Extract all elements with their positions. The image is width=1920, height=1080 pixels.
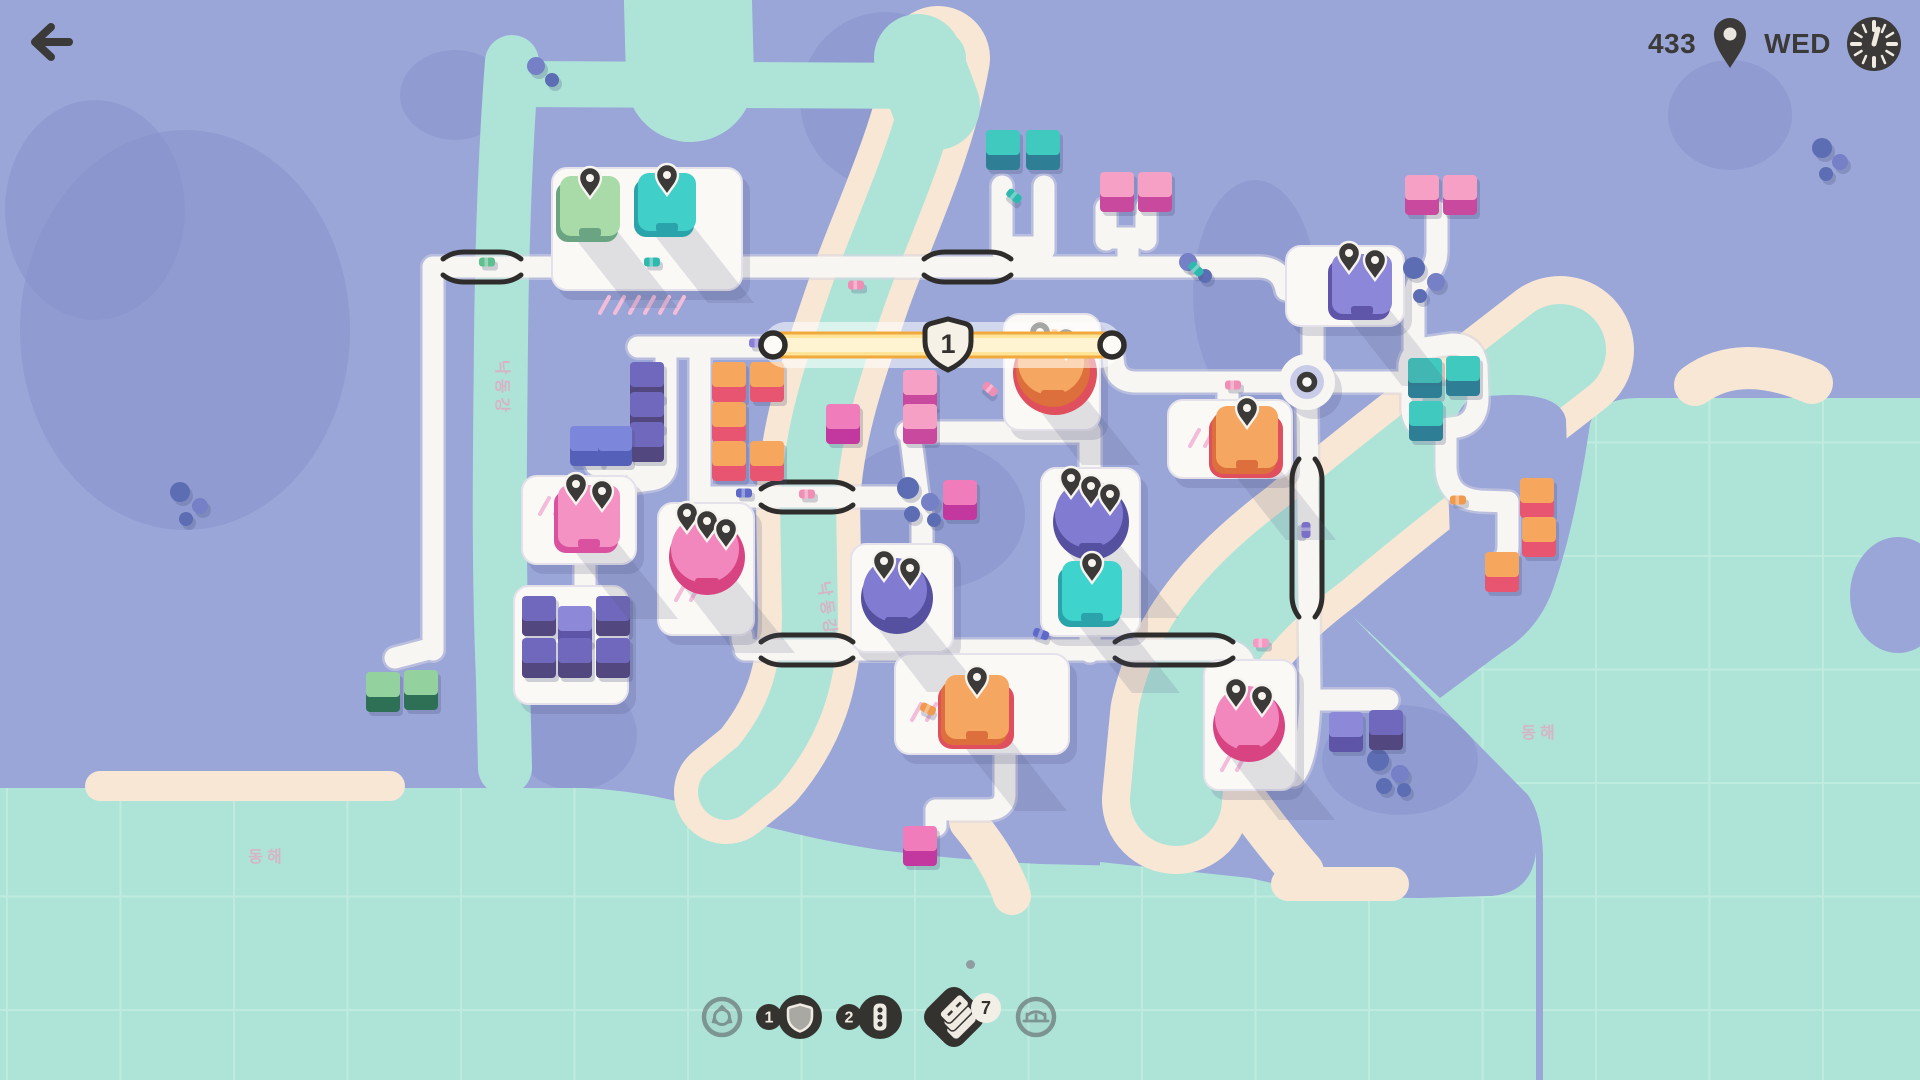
house	[750, 362, 784, 402]
city-map[interactable]: 동해동해낙동강낙동강1	[0, 0, 1920, 1080]
tree	[1812, 138, 1832, 158]
motorway-shield-number: 1	[940, 329, 955, 359]
tree	[921, 493, 939, 511]
traffic-light-count: 2	[845, 1010, 854, 1027]
terrain-sand	[1695, 368, 1812, 385]
house	[522, 638, 556, 678]
tree	[1413, 289, 1427, 303]
road-segment[interactable]	[1307, 408, 1310, 700]
page-indicator-dot	[966, 960, 975, 969]
house	[712, 441, 746, 481]
tree	[1376, 778, 1392, 794]
tree	[897, 477, 919, 499]
car	[848, 281, 864, 290]
house	[404, 670, 438, 710]
bridge-icon	[1013, 994, 1059, 1040]
clock-icon	[1844, 14, 1904, 74]
roundabout-icon	[699, 994, 745, 1040]
tree	[545, 73, 559, 87]
car	[1302, 522, 1311, 538]
house	[1100, 172, 1134, 212]
tree	[1403, 257, 1425, 279]
tree	[170, 482, 190, 502]
tree	[192, 498, 208, 514]
traffic-light-tool-button[interactable]: 2	[835, 992, 905, 1045]
house	[712, 362, 746, 402]
car	[1253, 639, 1269, 648]
house	[1026, 130, 1060, 170]
car	[1450, 496, 1466, 505]
motorway-count: 1	[765, 1010, 774, 1027]
tree	[179, 512, 193, 526]
tree	[1397, 783, 1411, 797]
car	[644, 258, 660, 267]
car	[736, 489, 752, 498]
bridge-tool-button[interactable]	[1013, 994, 1059, 1043]
house	[826, 404, 860, 444]
pin-count: 433	[1648, 28, 1696, 60]
house	[986, 130, 1020, 170]
motorway-endpoint[interactable]	[1100, 333, 1124, 357]
house	[750, 441, 784, 481]
car	[479, 258, 495, 267]
house	[558, 638, 592, 678]
status-bar: 433 WED	[1648, 14, 1904, 74]
house	[1446, 356, 1480, 396]
water-label: 낙동강	[493, 360, 511, 416]
car	[799, 490, 815, 499]
tree	[1427, 273, 1445, 291]
pin-icon	[1709, 16, 1751, 72]
house	[596, 638, 630, 678]
house	[598, 426, 632, 466]
house	[1405, 175, 1439, 215]
back-arrow-icon	[24, 20, 76, 64]
house	[1369, 710, 1403, 750]
house	[943, 480, 977, 520]
house	[1485, 552, 1519, 592]
tree	[527, 57, 545, 75]
tree	[1367, 749, 1389, 771]
tree	[1391, 765, 1409, 783]
game-screen: 동해동해낙동강낙동강1 433 WED	[0, 0, 1920, 1080]
motorway-overlay: 1	[761, 319, 1124, 370]
map-roundabout-center	[1300, 375, 1315, 390]
tree	[1819, 167, 1833, 181]
back-button[interactable]	[20, 16, 80, 71]
terrain-hill	[1668, 60, 1792, 170]
road-tiles-button[interactable]: 7	[915, 984, 1003, 1053]
road-segment[interactable]	[395, 648, 433, 658]
terrain-hill	[5, 100, 185, 320]
house	[1329, 712, 1363, 752]
water-label: 동해	[248, 848, 285, 866]
road-tiles-count: 7	[981, 998, 991, 1018]
house	[712, 402, 746, 442]
traffic-light-icon	[874, 1004, 887, 1031]
house	[903, 404, 937, 444]
motorway-tool-button[interactable]: 1	[755, 992, 825, 1045]
motorway-endpoint[interactable]	[761, 333, 785, 357]
house	[522, 596, 556, 636]
car	[1225, 381, 1241, 390]
house	[366, 672, 400, 712]
shield-icon	[788, 1005, 812, 1032]
tree	[904, 506, 920, 522]
terrain-river	[688, 2, 690, 78]
tree	[1832, 154, 1848, 170]
roundabout-tool-button[interactable]	[699, 994, 745, 1043]
house	[630, 422, 664, 462]
house	[1138, 172, 1172, 212]
house	[1409, 401, 1443, 441]
toolbar: 1 2	[699, 984, 1059, 1053]
tree	[927, 513, 941, 527]
terrain-river	[918, 58, 936, 106]
house	[1522, 517, 1556, 557]
house	[1520, 478, 1554, 518]
house	[903, 826, 937, 866]
water-label: 동해	[1521, 724, 1558, 742]
house	[1443, 175, 1477, 215]
day-label: WED	[1764, 28, 1831, 60]
